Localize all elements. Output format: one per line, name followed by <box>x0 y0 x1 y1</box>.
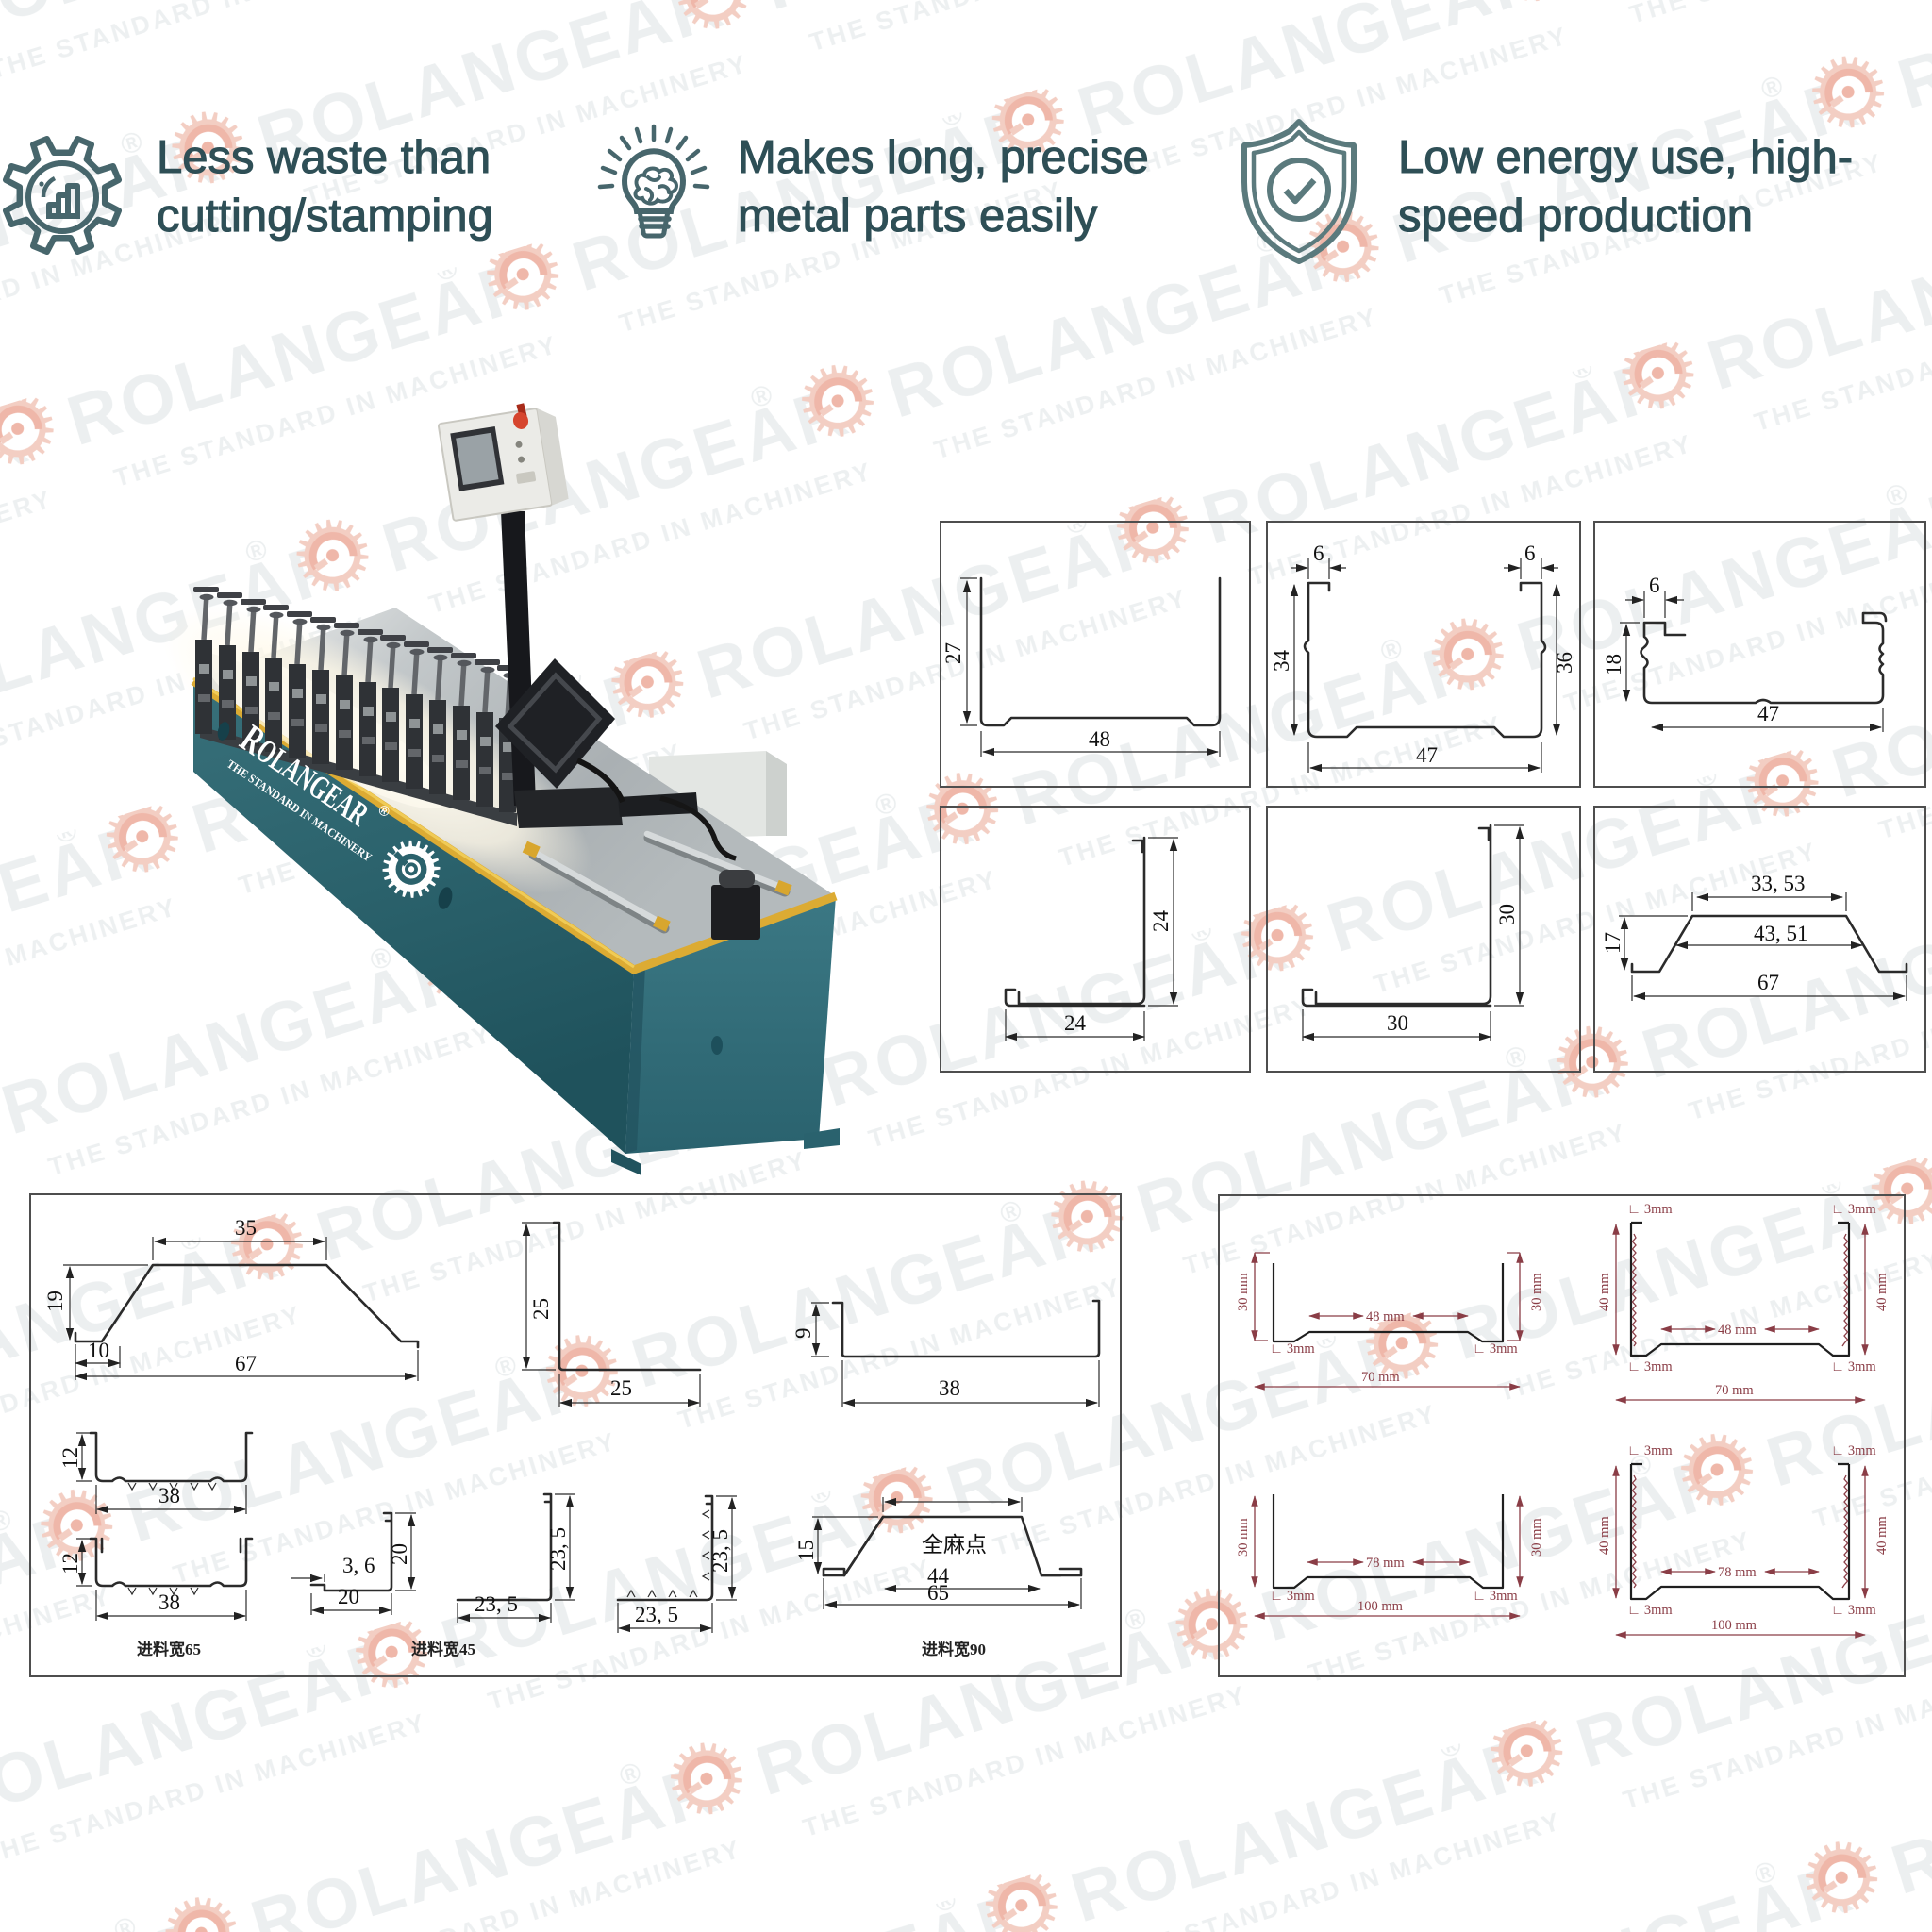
svg-text:48 mm: 48 mm <box>1366 1309 1405 1324</box>
svg-text:∟ 3mm: ∟ 3mm <box>1270 1341 1315 1357</box>
svg-text:35: 35 <box>235 1216 257 1240</box>
svg-text:78 mm: 78 mm <box>1366 1556 1405 1571</box>
svg-text:38: 38 <box>158 1591 180 1614</box>
svg-text:∟ 3mm: ∟ 3mm <box>1627 1202 1673 1217</box>
svg-text:进料宽45: 进料宽45 <box>411 1640 475 1658</box>
svg-text:65: 65 <box>927 1581 949 1605</box>
svg-text:36: 36 <box>1553 652 1576 674</box>
svg-text:47: 47 <box>1416 743 1438 767</box>
svg-text:43, 51: 43, 51 <box>1754 922 1808 945</box>
svg-text:34: 34 <box>1270 650 1293 673</box>
svg-text:25: 25 <box>529 1298 553 1320</box>
svg-text:25: 25 <box>610 1376 632 1400</box>
svg-text:38: 38 <box>158 1484 180 1507</box>
svg-text:100 mm: 100 mm <box>1357 1599 1404 1614</box>
svg-text:30: 30 <box>1387 1011 1408 1035</box>
svg-text:∟ 3mm: ∟ 3mm <box>1270 1589 1315 1604</box>
svg-text:67: 67 <box>1757 971 1779 994</box>
svg-text:18: 18 <box>1602 654 1625 675</box>
svg-text:24: 24 <box>1149 910 1173 933</box>
svg-text:6: 6 <box>1524 541 1536 565</box>
svg-text:30 mm: 30 mm <box>1529 1518 1544 1557</box>
svg-text:∟ 3mm: ∟ 3mm <box>1831 1603 1876 1618</box>
svg-text:40 mm: 40 mm <box>1597 1516 1612 1555</box>
svg-text:∟ 3mm: ∟ 3mm <box>1831 1443 1876 1458</box>
svg-text:12: 12 <box>58 1553 82 1574</box>
svg-text:9: 9 <box>791 1328 815 1340</box>
svg-text:40 mm: 40 mm <box>1874 1516 1890 1555</box>
svg-text:40 mm: 40 mm <box>1597 1273 1612 1311</box>
svg-text:78 mm: 78 mm <box>1718 1565 1757 1580</box>
svg-text:40 mm: 40 mm <box>1874 1273 1890 1311</box>
svg-text:15: 15 <box>794 1540 818 1561</box>
svg-text:24: 24 <box>1064 1011 1087 1035</box>
svg-text:进料宽65: 进料宽65 <box>137 1640 201 1658</box>
svg-text:∟ 3mm: ∟ 3mm <box>1831 1359 1876 1374</box>
svg-text:23, 5: 23, 5 <box>546 1527 570 1571</box>
svg-text:23, 5: 23, 5 <box>635 1603 678 1626</box>
svg-text:33, 53: 33, 53 <box>1751 872 1806 895</box>
svg-text:67: 67 <box>235 1352 257 1375</box>
svg-text:23, 5: 23, 5 <box>708 1529 732 1573</box>
svg-text:∟ 3mm: ∟ 3mm <box>1627 1443 1673 1458</box>
svg-text:20: 20 <box>338 1585 359 1608</box>
svg-text:全麻点: 全麻点 <box>922 1533 987 1557</box>
svg-text:∟ 3mm: ∟ 3mm <box>1473 1589 1518 1604</box>
svg-text:30 mm: 30 mm <box>1236 1518 1251 1557</box>
svg-text:6: 6 <box>1649 574 1660 597</box>
svg-text:3, 6: 3, 6 <box>342 1554 375 1577</box>
svg-text:6: 6 <box>1313 541 1324 565</box>
svg-text:∟ 3mm: ∟ 3mm <box>1627 1603 1673 1618</box>
svg-text:48: 48 <box>1089 727 1110 751</box>
svg-text:进料宽90: 进料宽90 <box>922 1640 986 1658</box>
svg-text:19: 19 <box>43 1291 67 1312</box>
svg-text:20: 20 <box>388 1543 411 1565</box>
svg-text:47: 47 <box>1757 702 1779 725</box>
svg-text:10: 10 <box>88 1339 109 1362</box>
svg-text:30: 30 <box>1495 904 1519 925</box>
svg-text:27: 27 <box>941 642 965 664</box>
svg-text:∟ 3mm: ∟ 3mm <box>1831 1202 1876 1217</box>
svg-text:∟ 3mm: ∟ 3mm <box>1627 1359 1673 1374</box>
svg-text:12: 12 <box>58 1447 82 1469</box>
svg-text:∟ 3mm: ∟ 3mm <box>1473 1341 1518 1357</box>
svg-text:70 mm: 70 mm <box>1361 1370 1400 1385</box>
svg-text:17: 17 <box>1601 932 1624 954</box>
svg-text:70 mm: 70 mm <box>1715 1383 1754 1398</box>
svg-text:23, 5: 23, 5 <box>475 1592 518 1616</box>
svg-text:30 mm: 30 mm <box>1529 1273 1544 1311</box>
svg-text:100 mm: 100 mm <box>1711 1618 1757 1633</box>
svg-text:48 mm: 48 mm <box>1718 1323 1757 1338</box>
svg-text:30 mm: 30 mm <box>1236 1273 1251 1311</box>
svg-text:38: 38 <box>939 1376 960 1400</box>
